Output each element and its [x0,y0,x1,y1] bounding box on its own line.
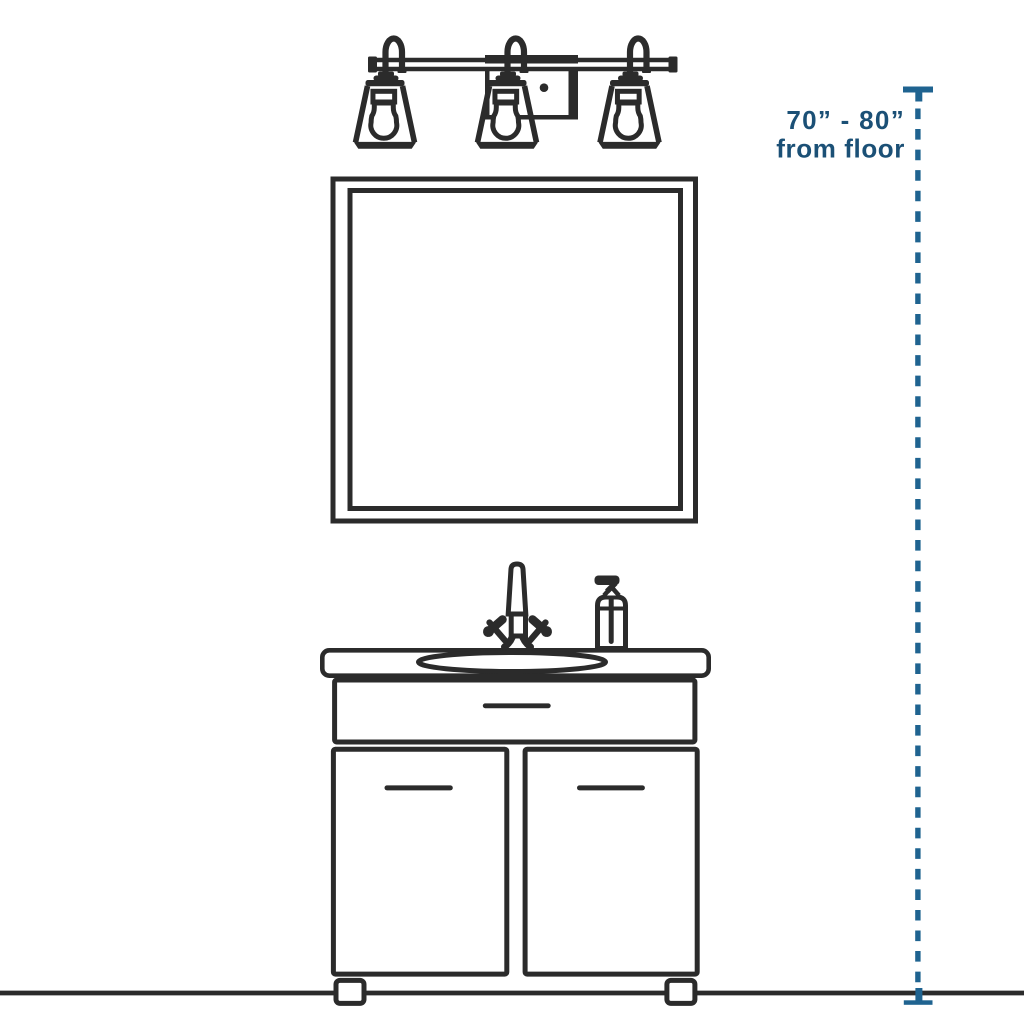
svg-text:from floor: from floor [776,134,905,164]
svg-text:70” - 80”: 70” - 80” [786,105,905,135]
